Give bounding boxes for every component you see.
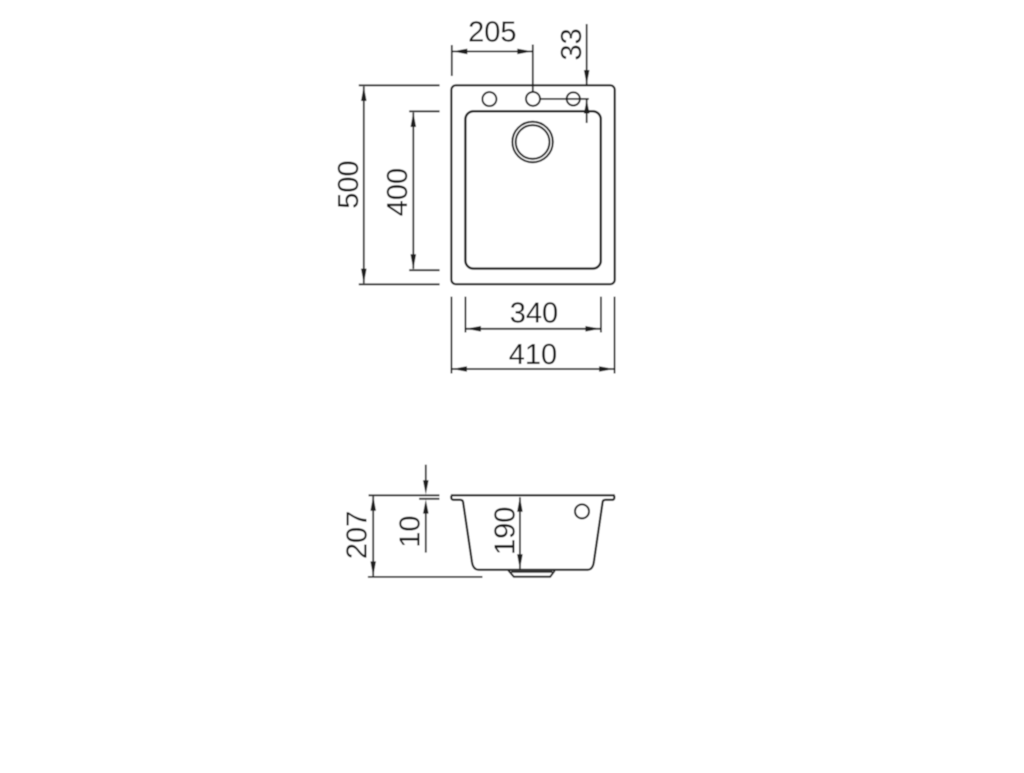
svg-text:33: 33	[556, 28, 588, 60]
svg-text:500: 500	[333, 160, 365, 208]
svg-text:400: 400	[382, 168, 414, 216]
svg-text:207: 207	[342, 511, 374, 559]
svg-text:410: 410	[509, 339, 557, 371]
svg-text:205: 205	[468, 16, 516, 48]
svg-text:10: 10	[394, 515, 426, 547]
svg-text:190: 190	[489, 507, 521, 555]
svg-text:340: 340	[510, 298, 558, 330]
